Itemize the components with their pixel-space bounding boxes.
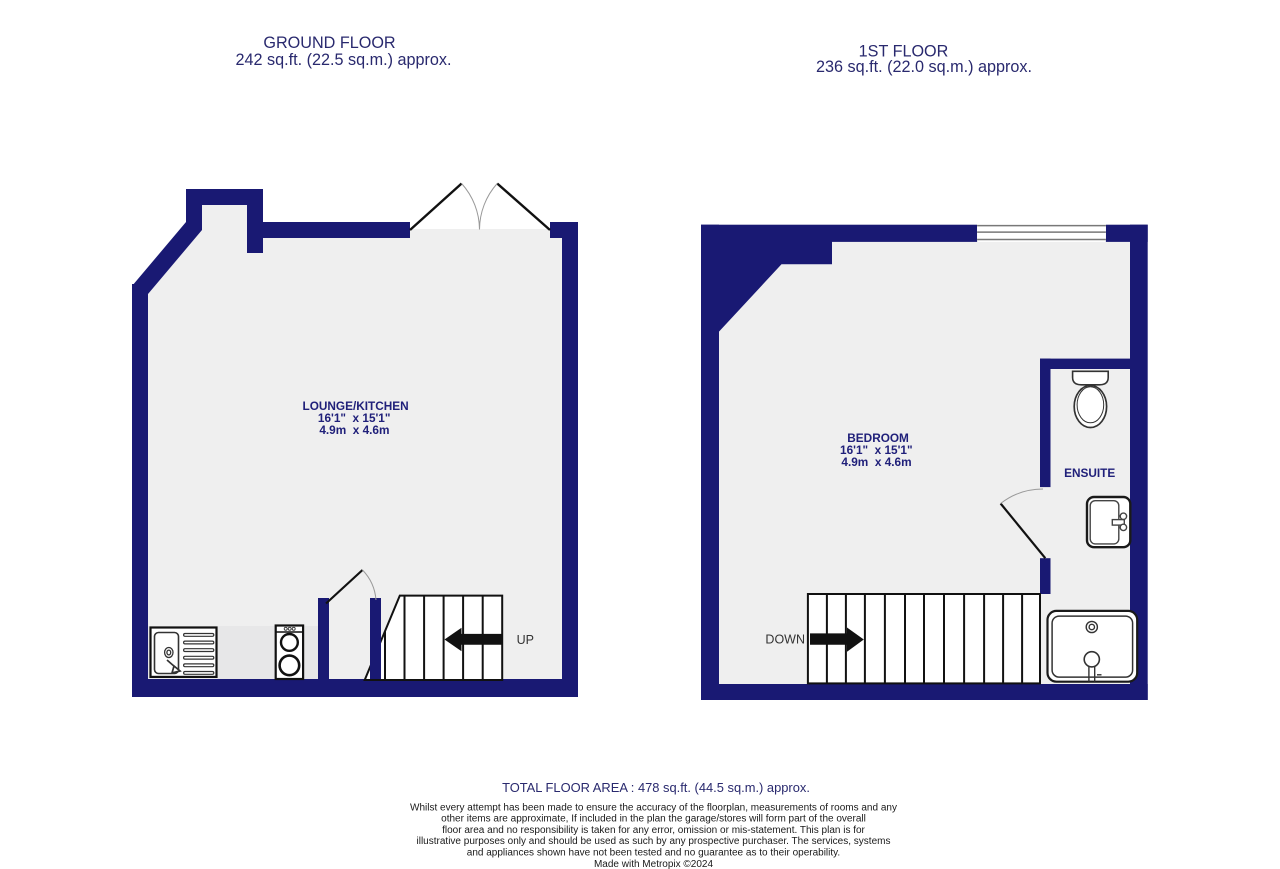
svg-text:floor area and no responsibili: floor area and no responsibility is take…	[442, 825, 865, 836]
svg-text:242 sq.ft. (22.5 sq.m.) approx: 242 sq.ft. (22.5 sq.m.) approx.	[236, 51, 452, 69]
svg-text:GROUND FLOOR: GROUND FLOOR	[263, 34, 395, 52]
svg-text:Made with Metropix ©2024: Made with Metropix ©2024	[594, 859, 714, 869]
svg-text:ENSUITE: ENSUITE	[1064, 466, 1115, 480]
svg-text:illustrative purposes only and: illustrative purposes only and should be…	[417, 836, 891, 847]
svg-text:DOWN: DOWN	[765, 633, 805, 647]
svg-text:4.9m x 4.6m: 4.9m x 4.6m	[841, 455, 911, 469]
svg-text:TOTAL FLOOR AREA : 478 sq.ft.: TOTAL FLOOR AREA : 478 sq.ft. (44.5 sq.m…	[502, 780, 810, 795]
svg-text:UP: UP	[517, 633, 534, 647]
svg-text:and appliances shown have not: and appliances shown have not been teste…	[467, 848, 840, 859]
svg-text:236 sq.ft. (22.0 sq.m.) approx: 236 sq.ft. (22.0 sq.m.) approx.	[816, 58, 1032, 76]
svg-text:Whilst every attempt has been: Whilst every attempt has been made to en…	[410, 802, 897, 813]
svg-text:other items are approximate, I: other items are approximate, If included…	[441, 814, 866, 825]
svg-text:4.9m x 4.6m: 4.9m x 4.6m	[319, 423, 389, 437]
